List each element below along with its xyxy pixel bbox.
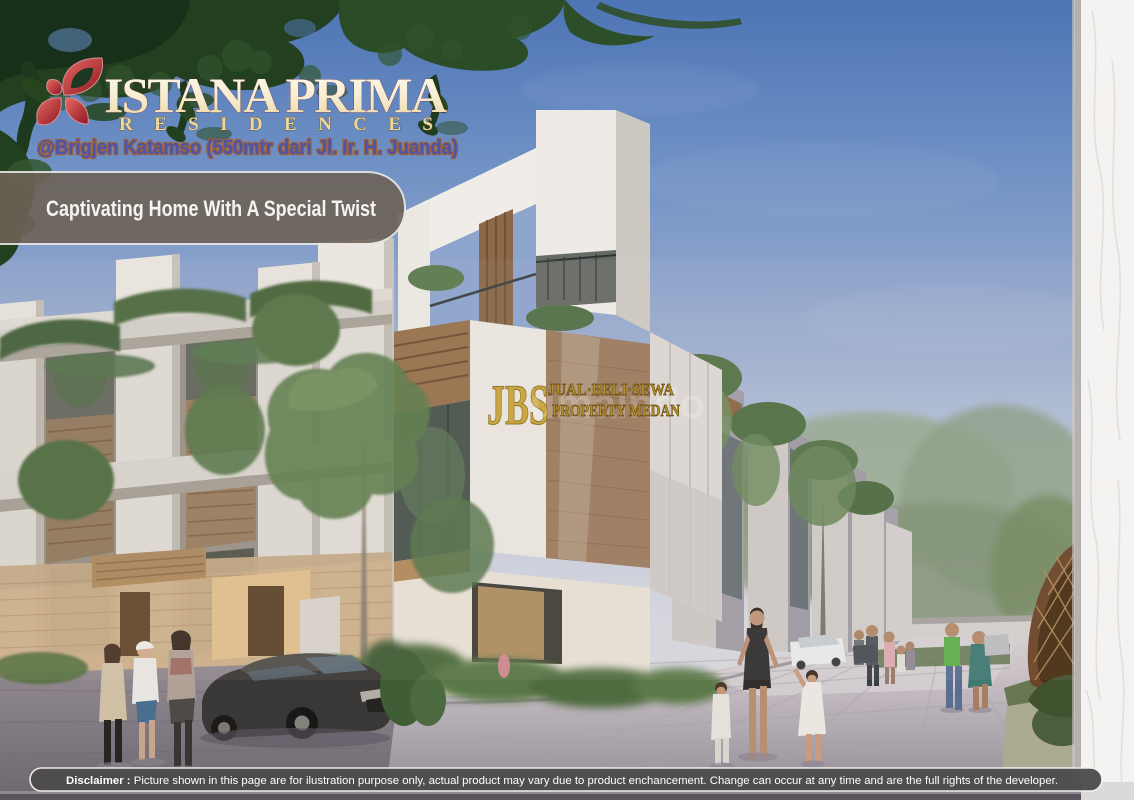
svg-text:JUAL·BELI·SEWA: JUAL·BELI·SEWA: [548, 380, 675, 399]
svg-text:Captivating Home With A Specia: Captivating Home With A Special Twist: [46, 196, 377, 221]
svg-text:Disclaimer : Picture shown in: Disclaimer : Picture shown in this page …: [66, 775, 1058, 787]
svg-text:PROPERTY MEDAN: PROPERTY MEDAN: [552, 401, 681, 420]
svg-text:@Brigjen Katamso (550mtr dari: @Brigjen Katamso (550mtr dari Jl. Ir. H.…: [37, 137, 458, 159]
